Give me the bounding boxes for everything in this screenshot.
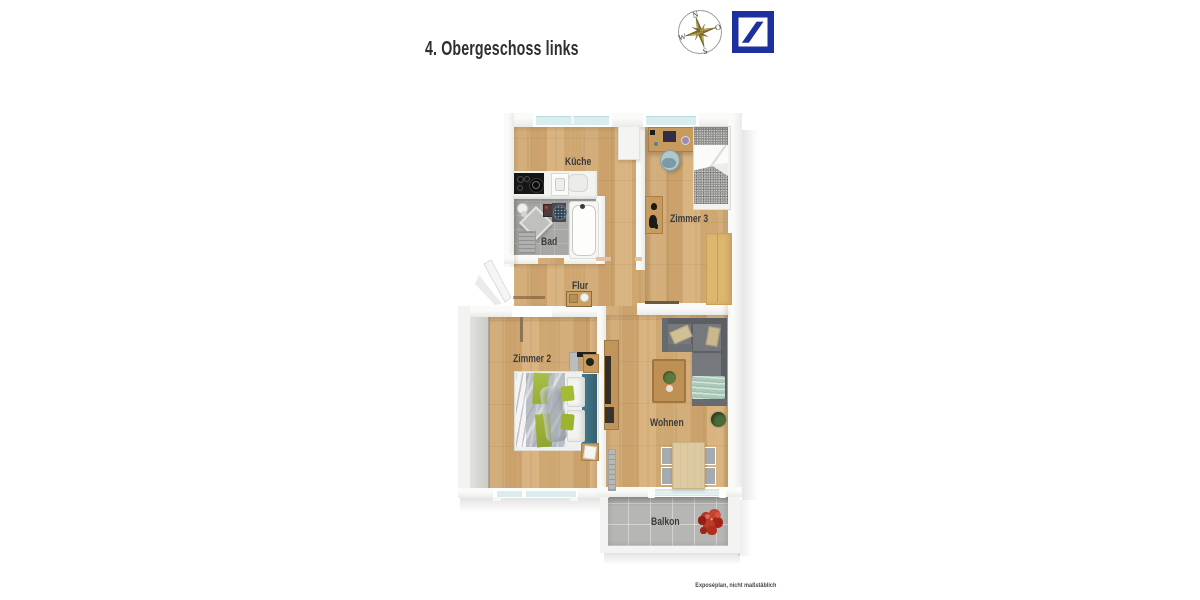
svg-text:W: W [677,32,687,43]
svg-text:O: O [714,22,722,32]
svg-text:S: S [702,46,709,56]
svg-text:N: N [691,10,699,20]
